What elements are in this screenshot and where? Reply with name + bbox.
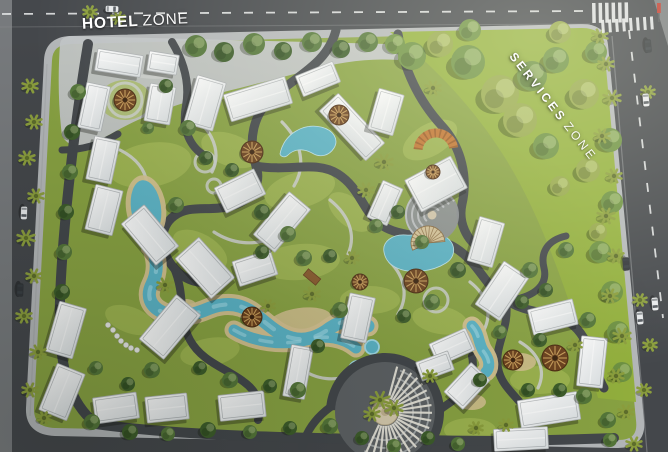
masterplan-aerial-render: HOTELZONE SERVICESZONE: [0, 0, 668, 452]
hotel-zone-label-light: ZONE: [142, 10, 189, 29]
hotel-zone-label-bold: HOTEL: [82, 13, 139, 33]
lighting-overlay: [0, 0, 668, 452]
site-plan-canvas: [0, 0, 668, 452]
